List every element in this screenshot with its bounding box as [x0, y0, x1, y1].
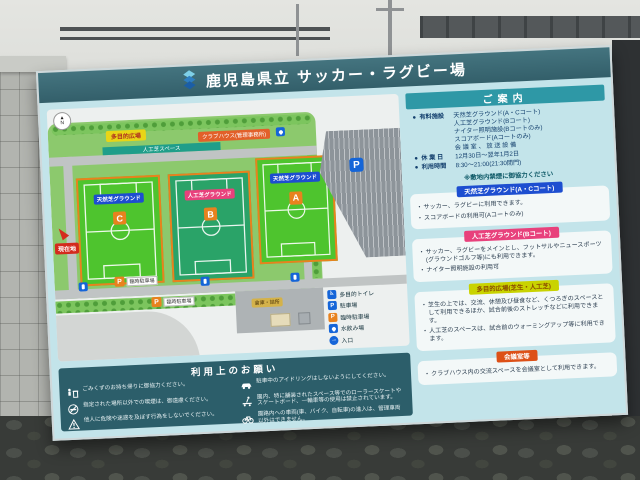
toilet-mini-icon: [200, 277, 209, 286]
building: [270, 313, 291, 327]
entrance-icon: →: [329, 335, 338, 344]
info-label: 有料施設: [419, 112, 455, 154]
notes-right-column: 駐車中のアイドリングはしないようにしてください。 園内、特に舗装されたスペース等…: [240, 372, 406, 430]
temp-parking-icon: P: [151, 297, 161, 307]
info-label: 休 業 日: [421, 154, 455, 164]
facility-logo-icon: [181, 67, 198, 95]
section-plaza: 多目的広場(芝生・人工芝) 芝生の上では、交流、休憩及び昼食など、くつろぎのスペ…: [414, 283, 615, 351]
guide-title: ご案内: [405, 84, 605, 109]
section-badge: 人工芝グラウンド(Bコート): [464, 227, 560, 242]
field-b: 人工芝グラウンド B: [168, 171, 255, 283]
field-c: 天然芝グラウンド C: [76, 175, 165, 287]
service-yard: [235, 287, 325, 333]
section-meeting-room: 会議室等 クラブハウス内の交流スペースを会議室として利用できます。: [417, 352, 617, 385]
note-item: 園路内への車両(車、バイク、自転車)の進入は、管理車両以外はできません。: [242, 405, 406, 426]
trash-icon: [66, 388, 78, 400]
railing: [420, 16, 640, 38]
info-lines: 8:30～21:00(21:30閉門): [455, 160, 521, 171]
bicycle-icon: [242, 413, 254, 425]
section-natural-turf: 天然芝グラウンド(A・Cコート) サッカー、ラグビーに利用できます。 スコアボー…: [410, 186, 610, 229]
entry-plaza: [47, 309, 201, 361]
section-artificial-turf: 人工芝グラウンド(Bコート) サッカー、ラグビーをメインとし、フットサルやニュー…: [412, 230, 613, 282]
temp-parking-marker: P 臨時駐車場: [151, 295, 194, 307]
storage-label: 倉庫・詰所: [251, 297, 282, 307]
temp-parking-label: 臨時駐車場: [126, 275, 157, 285]
field-a-letter: A: [289, 191, 303, 205]
section-badge: 多目的広場(芝生・人工芝): [468, 279, 559, 294]
note-item: 他人に危険や迷惑を及ぼす行為をしないでください。: [68, 411, 232, 430]
fence-bar: [60, 27, 330, 31]
skateboard-icon: [241, 395, 253, 407]
no-smoking-icon: [67, 403, 79, 415]
sign-title: 鹿児島県立 サッカー・ラグビー場: [205, 58, 467, 91]
info-label: 利用時間: [422, 163, 456, 173]
section-badge: 天然芝グラウンド(A・Cコート): [456, 182, 563, 198]
notes-left-column: ごみくずのお持ち帰りに御協力ください。 指定された場所以外での喫煙は、御遠慮くだ…: [66, 380, 232, 438]
plaza-label: 多目的広場: [106, 129, 146, 142]
light-pole: [296, 4, 299, 56]
section-item: クラブハウス内の交流スペースを会議室として利用できます。: [431, 362, 611, 378]
section-badge: 会議室等: [496, 349, 538, 362]
you-are-here-badge: 現在地: [55, 242, 79, 254]
fence-bar: [60, 37, 330, 40]
caution-icon: [68, 419, 80, 431]
temp-parking-marker: P 臨時駐車場: [114, 275, 157, 287]
usage-notes-panel: 利用上のお願い ごみくずのお持ち帰りに御協力ください。: [58, 353, 412, 432]
parking-icon: P: [328, 301, 337, 310]
information-signboard: 鹿児島県立 サッカー・ラグビー場 ▲N 多目的広場 クラブハウス(管理事務所) …: [36, 45, 628, 441]
toilet-mini-icon: [290, 273, 299, 282]
legend-item: → 入口: [329, 332, 407, 346]
temp-parking-label: 臨時駐車場: [163, 296, 194, 306]
fountain-mini-icon: [276, 127, 285, 136]
map-legend: ♿ 多目的トイレ P 駐車場 P 臨時駐車場 水飲み場 → 入口: [327, 286, 407, 345]
photo-of-sign: 鹿児島県立 サッカー・ラグビー場 ▲N 多目的広場 クラブハウス(管理事務所) …: [0, 0, 640, 480]
toilet-mini-icon: [79, 282, 88, 291]
field-c-letter: C: [113, 212, 127, 226]
guide-panel: ご案内 ● 有料施設 天然芝グラウンド(A・Cコート) 人工芝グラウンド(Bコー…: [405, 84, 618, 415]
building: [298, 312, 311, 325]
parking-icon: P: [349, 157, 364, 172]
car-icon: [240, 380, 252, 392]
fountain-icon: [329, 324, 338, 333]
field-b-letter: B: [204, 207, 218, 221]
info-lines: 天然芝グラウンド(A・Cコート) 人工芝グラウンド(Bコート) ナイター照明施設…: [453, 108, 543, 152]
temp-parking-icon: P: [328, 312, 337, 321]
facility-info: ● 有料施設 天然芝グラウンド(A・Cコート) 人工芝グラウンド(Bコート) ナ…: [412, 106, 605, 173]
site-map: ▲N 多目的広場 クラブハウス(管理事務所) 人工芝スペース 天然芝グラウンド …: [47, 94, 410, 362]
light-pole-crossarm: [376, 8, 404, 11]
accessible-toilet-icon: ♿: [327, 289, 336, 298]
temp-parking-icon: P: [114, 276, 124, 286]
